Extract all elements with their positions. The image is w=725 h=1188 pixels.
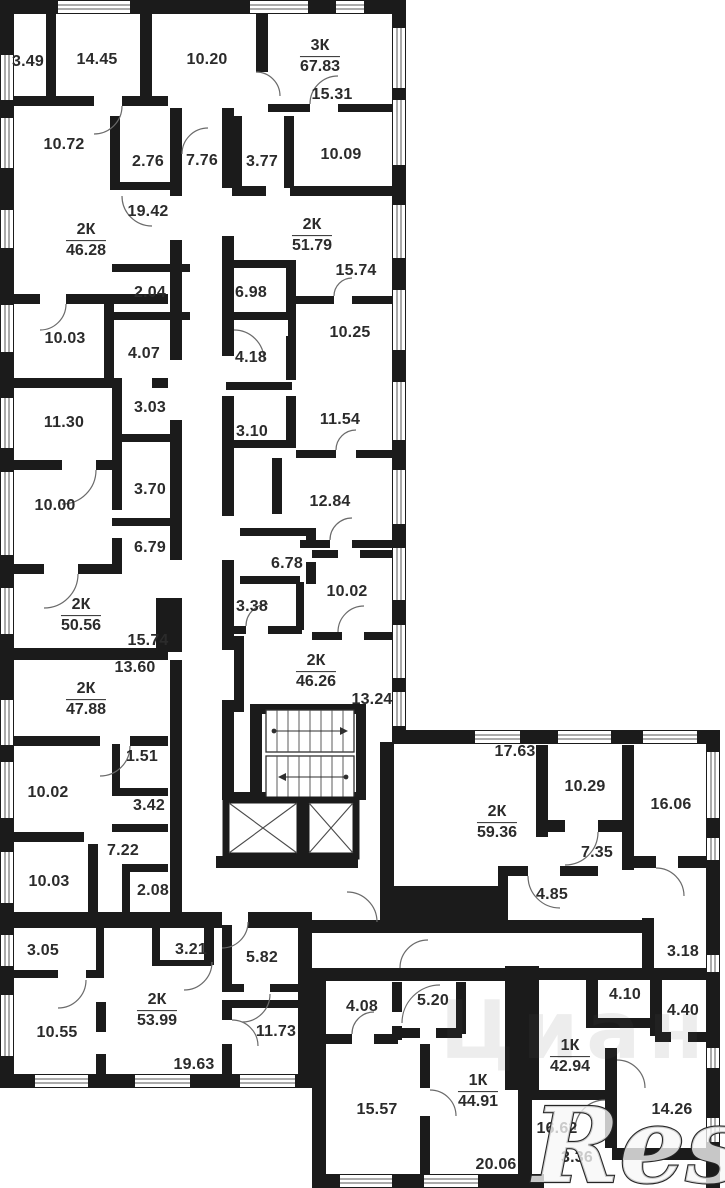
elevator-shaft bbox=[306, 800, 356, 856]
room-area-label: 3.10 bbox=[236, 423, 268, 441]
room-area-label: 14.45 bbox=[76, 51, 117, 69]
room-area-label: 7.35 bbox=[581, 844, 613, 862]
room-area-label: 15.57 bbox=[356, 1101, 397, 1119]
room-area-label: 15.31 bbox=[311, 86, 352, 104]
room-area-label: 16.62 bbox=[536, 1120, 577, 1138]
room-area-label: 10.55 bbox=[36, 1024, 77, 1042]
room-area-label: 3.70 bbox=[134, 481, 166, 499]
room-area-label: 5.82 bbox=[246, 949, 278, 967]
room-area-label: 19.42 bbox=[127, 203, 168, 221]
room-area-label: 7.22 bbox=[107, 842, 139, 860]
room-area-label: 10.00 bbox=[34, 497, 75, 515]
apartment-label: 2К59.36 bbox=[477, 803, 517, 843]
elevator-shafts bbox=[226, 800, 356, 856]
room-area-label: 4.08 bbox=[346, 998, 378, 1016]
staircase bbox=[266, 710, 354, 798]
room-area-label: 3.21 bbox=[175, 941, 207, 959]
room-area-label: 1.51 bbox=[126, 748, 158, 766]
room-area-label: 10.02 bbox=[27, 784, 68, 802]
apartment-label: 2К50.56 bbox=[61, 596, 101, 636]
door-arcs-layer bbox=[40, 72, 684, 1130]
windows-layer bbox=[1, 1, 719, 1187]
restate-watermark: Restate bbox=[530, 1084, 725, 1188]
room-area-label: 3.18 bbox=[667, 943, 699, 961]
room-area-label: 11.54 bbox=[320, 411, 360, 429]
cyan-watermark: Циан bbox=[440, 984, 712, 1077]
room-area-label: 13.24 bbox=[351, 691, 392, 709]
room-area-label: 5.20 bbox=[417, 992, 449, 1010]
apartment-label: 1К44.91 bbox=[458, 1072, 498, 1112]
room-area-label: 12.84 bbox=[309, 493, 350, 511]
room-area-label: 6.79 bbox=[134, 539, 166, 557]
room-area-label: 11.73 bbox=[256, 1023, 296, 1041]
apartment-label: 3К67.83 bbox=[300, 37, 340, 77]
room-area-label: 3.38 bbox=[236, 598, 268, 616]
room-area-label: 10.20 bbox=[186, 51, 227, 69]
room-area-label: 4.10 bbox=[609, 986, 641, 1004]
room-area-label: 10.03 bbox=[28, 873, 69, 891]
apartment-label: 2К46.26 bbox=[296, 652, 336, 692]
room-area-label: 14.26 bbox=[651, 1101, 692, 1119]
elevator-shaft bbox=[226, 800, 300, 856]
room-area-label: 2.08 bbox=[137, 882, 169, 900]
room-area-label: 20.06 bbox=[475, 1156, 516, 1174]
apartment-label: 2К51.79 bbox=[292, 216, 332, 256]
room-area-label: 17.63 bbox=[494, 743, 535, 761]
room-area-label: 7.76 bbox=[186, 152, 218, 170]
room-area-label: 3.03 bbox=[134, 399, 166, 417]
labels-layer: 3.4914.4510.2015.3110.722.767.763.7710.0… bbox=[0, 0, 725, 1188]
room-area-label: 10.72 bbox=[43, 136, 84, 154]
apartment-label: 1К42.94 bbox=[550, 1037, 590, 1077]
room-area-label: 11.30 bbox=[44, 414, 84, 432]
room-area-label: 10.29 bbox=[564, 778, 605, 796]
room-area-label: 16.06 bbox=[650, 796, 691, 814]
apartment-label: 2К46.28 bbox=[66, 221, 106, 261]
room-area-label: 4.85 bbox=[536, 886, 568, 904]
room-area-label: 3.36 bbox=[561, 1149, 593, 1167]
apartment-label: 2К53.99 bbox=[137, 991, 177, 1031]
room-area-label: 13.60 bbox=[114, 659, 155, 677]
room-area-label: 6.98 bbox=[235, 284, 267, 302]
room-area-label: 10.02 bbox=[326, 583, 367, 601]
room-area-label: 3.42 bbox=[133, 797, 165, 815]
room-area-label: 10.09 bbox=[320, 146, 361, 164]
apartment-label: 2К47.88 bbox=[66, 680, 106, 720]
floorplan-drawing bbox=[0, 0, 725, 1188]
room-area-label: 10.25 bbox=[329, 324, 370, 342]
walls-layer bbox=[0, 0, 720, 1188]
room-area-label: 2.76 bbox=[132, 153, 164, 171]
room-area-label: 4.40 bbox=[667, 1002, 699, 1020]
floor-plan: 3.4914.4510.2015.3110.722.767.763.7710.0… bbox=[0, 0, 725, 1188]
room-area-label: 15.74 bbox=[127, 632, 168, 650]
room-area-label: 3.49 bbox=[12, 53, 44, 71]
room-area-label: 4.18 bbox=[235, 349, 267, 367]
room-area-label: 3.77 bbox=[246, 153, 278, 171]
room-area-label: 3.05 bbox=[27, 942, 59, 960]
room-area-label: 4.07 bbox=[128, 345, 160, 363]
room-area-label: 2.04 bbox=[134, 284, 166, 302]
watermarks-layer: Циан Restate bbox=[0, 0, 725, 1188]
room-area-label: 10.03 bbox=[44, 330, 85, 348]
room-area-label: 6.78 bbox=[271, 555, 303, 573]
room-area-label: 19.63 bbox=[173, 1056, 214, 1074]
room-area-label: 15.74 bbox=[335, 262, 376, 280]
